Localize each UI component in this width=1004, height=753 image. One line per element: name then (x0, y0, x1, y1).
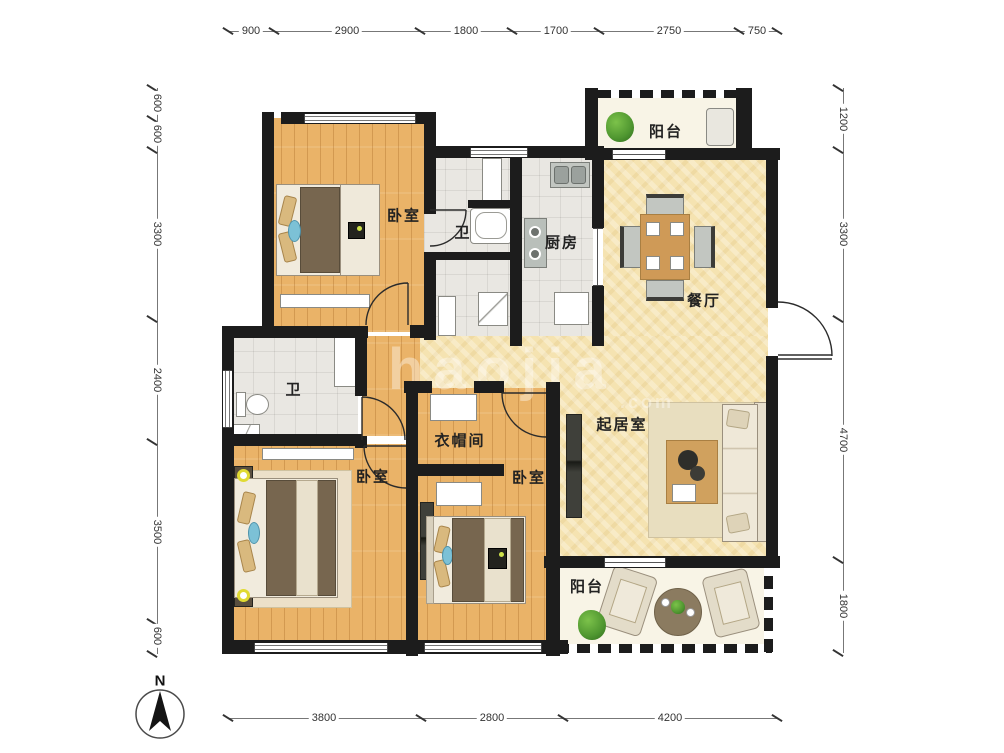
room-label-bedroom-top: 卧室 (387, 205, 421, 226)
door-arc-entry (778, 302, 832, 359)
door-arc (366, 283, 408, 325)
door-arcs-overlay (0, 0, 1004, 753)
room-label-kitchen: 厨房 (545, 232, 579, 253)
room-label-bedroom-mid: 卧室 (512, 467, 546, 488)
room-label-balcony-bottom: 阳台 (570, 576, 604, 597)
compass-north-label: N (155, 673, 166, 690)
room-label-bath-mid: 卫 (285, 379, 302, 400)
room-label-bath-top: 卫 (454, 222, 471, 243)
room-label-dining: 餐厅 (687, 290, 721, 311)
door-arc (502, 393, 546, 437)
room-label-balcony-top: 阳台 (649, 121, 683, 142)
room-label-living: 起居室 (596, 414, 647, 435)
room-label-cloakroom: 衣帽间 (434, 430, 485, 451)
room-label-bedroom-left: 卧室 (356, 466, 390, 487)
floor-plan-canvas: haojia .com (0, 0, 1004, 753)
compass-icon (136, 690, 184, 738)
door-arc (362, 397, 405, 440)
